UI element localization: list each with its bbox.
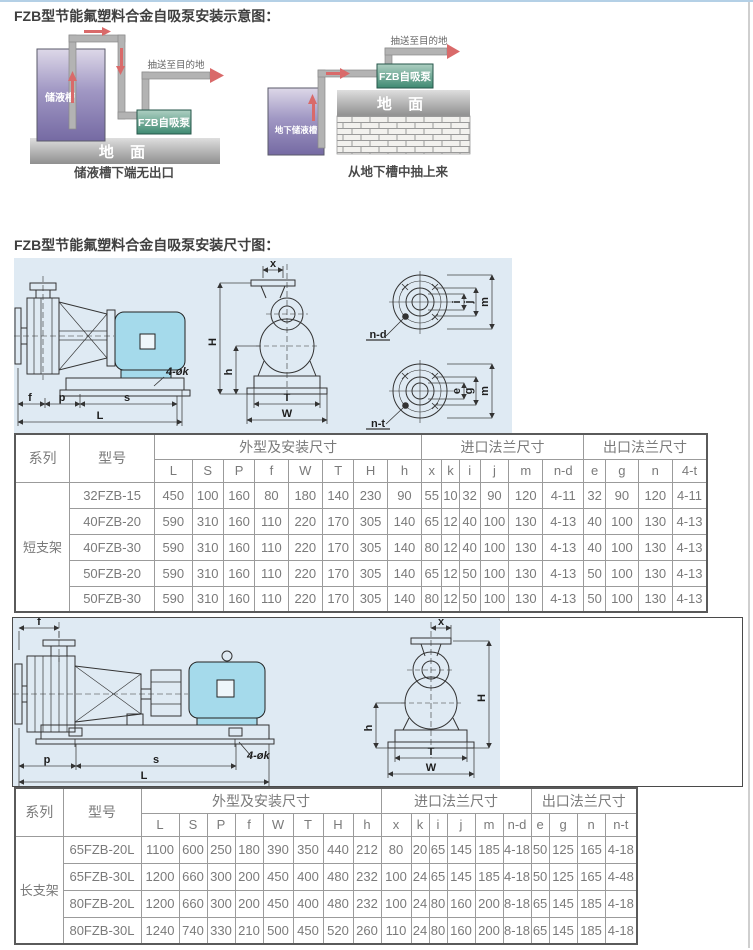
value-cell: 125 [549, 863, 577, 890]
dim-L: L [141, 770, 148, 782]
column-header-g: g [549, 813, 577, 836]
model-cell: 40FZB-20 [70, 508, 155, 534]
value-cell: 220 [288, 560, 322, 586]
col-group-outline: 外型及安装尺寸 [141, 788, 381, 813]
value-cell: 160 [223, 534, 254, 560]
value-cell: 24 [411, 917, 429, 944]
value-cell: 4-18 [503, 863, 531, 890]
dim-s: s [153, 754, 159, 766]
dim-nd: n-d [369, 329, 386, 341]
pump-front-view [247, 264, 327, 398]
installation-schematic: FZB自吸泵 储液槽 地 面 抽送至目的地 储液槽下端无出口 [14, 26, 474, 198]
model-cell: 50FZB-20 [70, 560, 155, 586]
column-header-i: i [459, 459, 480, 482]
dim-L: L [97, 410, 104, 422]
value-cell: 4-18 [503, 836, 531, 863]
col-group-outlet: 出口法兰尺寸 [583, 434, 707, 459]
value-cell: 140 [387, 560, 421, 586]
value-cell: 130 [509, 560, 543, 586]
column-header-P: P [207, 813, 235, 836]
spec-row-32FZB-15: 短支架32FZB-1545010016080180140230905510329… [15, 482, 707, 508]
pipe [69, 35, 125, 42]
drawing-long-svg: 4-øk f p s L [13, 618, 742, 786]
column-header-W: W [263, 813, 293, 836]
value-cell: 145 [549, 890, 577, 917]
value-cell: 100 [606, 560, 638, 586]
value-cell: 145 [447, 863, 475, 890]
value-cell: 200 [475, 917, 503, 944]
value-cell: 4-13 [672, 534, 707, 560]
destination-label: 抽送至目的地 [147, 59, 205, 71]
dim-m: m [479, 297, 491, 307]
pipe [142, 72, 210, 79]
series-cell: 短支架 [15, 482, 70, 612]
caption-left: 储液槽下端无出口 [73, 165, 174, 180]
value-cell: 170 [323, 560, 354, 586]
value-cell: 90 [387, 482, 421, 508]
long-bracket-spec-table: 系列 型号 外型及安装尺寸 进口法兰尺寸 出口法兰尺寸 LSPfWTHhxkij… [14, 787, 638, 945]
value-cell: 300 [207, 890, 235, 917]
dim-i: i [451, 300, 463, 303]
value-cell: 65 [422, 508, 442, 534]
value-cell: 110 [255, 586, 288, 612]
value-cell: 450 [155, 482, 192, 508]
value-cell: 170 [323, 508, 354, 534]
value-cell: 400 [293, 890, 323, 917]
column-header-x: x [422, 459, 442, 482]
value-cell: 145 [447, 836, 475, 863]
value-cell: 600 [179, 836, 207, 863]
bolt-hole-label: 4-øk [246, 750, 271, 762]
tank-label: 储液槽 [44, 91, 75, 104]
value-cell: 65 [429, 836, 447, 863]
value-cell: 170 [323, 534, 354, 560]
value-cell: 350 [293, 836, 323, 863]
value-cell: 24 [411, 890, 429, 917]
value-cell: 4-18 [605, 890, 637, 917]
value-cell: 50 [583, 560, 605, 586]
dim-H: H [476, 694, 488, 702]
dim-s: s [124, 392, 130, 404]
ground-label: 地 面 [99, 143, 151, 161]
value-cell: 80 [422, 586, 442, 612]
value-cell: 4-13 [672, 586, 707, 612]
value-cell: 305 [354, 508, 387, 534]
value-cell: 10 [442, 482, 459, 508]
column-header-H: H [323, 813, 353, 836]
column-header-k: k [411, 813, 429, 836]
col-group-model: 型号 [63, 788, 141, 836]
tank-right [268, 88, 324, 155]
value-cell: 12 [442, 508, 459, 534]
column-header-4-t: 4-t [672, 459, 707, 482]
value-cell: 65 [429, 863, 447, 890]
value-cell: 450 [263, 890, 293, 917]
value-cell: 200 [235, 863, 263, 890]
value-cell: 4-18 [605, 836, 637, 863]
value-cell: 1200 [141, 863, 179, 890]
value-cell: 450 [293, 917, 323, 944]
value-cell: 12 [442, 560, 459, 586]
value-cell: 4-13 [543, 586, 584, 612]
value-cell: 100 [480, 586, 508, 612]
col-group-model: 型号 [70, 434, 155, 482]
dim-W: W [282, 408, 293, 420]
column-header-n-d: n-d [543, 459, 584, 482]
short-bracket-table-section: 系列 型号 外型及安装尺寸 进口法兰尺寸 出口法兰尺寸 LSPfWTHhxkij… [14, 433, 708, 613]
value-cell: 232 [353, 863, 381, 890]
value-cell: 160 [223, 586, 254, 612]
value-cell: 4-11 [672, 482, 707, 508]
value-cell: 590 [155, 534, 192, 560]
value-cell: 4-13 [672, 560, 707, 586]
value-cell: 500 [263, 917, 293, 944]
spec-row-40FZB-20: 40FZB-2059031016011022017030514065124010… [15, 508, 707, 534]
value-cell: 300 [207, 863, 235, 890]
pipe [118, 35, 125, 119]
value-cell: 160 [223, 508, 254, 534]
value-cell: 130 [638, 534, 672, 560]
model-cell: 50FZB-30 [70, 586, 155, 612]
value-cell: 590 [155, 508, 192, 534]
pipe [318, 70, 325, 148]
column-header-f: f [255, 459, 288, 482]
value-cell: 100 [381, 863, 411, 890]
column-header-S: S [179, 813, 207, 836]
value-cell: 185 [475, 836, 503, 863]
value-cell: 210 [235, 917, 263, 944]
column-header-n-t: n-t [605, 813, 637, 836]
value-cell: 305 [354, 534, 387, 560]
value-cell: 110 [381, 917, 411, 944]
column-header-S: S [192, 459, 223, 482]
value-cell: 4-13 [543, 534, 584, 560]
value-cell: 180 [288, 482, 322, 508]
value-cell: 480 [323, 890, 353, 917]
value-cell: 165 [577, 863, 605, 890]
value-cell: 4-13 [543, 508, 584, 534]
column-header-k: k [442, 459, 459, 482]
value-cell: 65 [531, 890, 549, 917]
value-cell: 1200 [141, 890, 179, 917]
tank-label: 地下储液槽 [275, 125, 318, 135]
model-cell: 65FZB-20L [63, 836, 141, 863]
pump-label: FZB自吸泵 [138, 116, 190, 129]
value-cell: 50 [459, 560, 480, 586]
value-cell: 310 [192, 560, 223, 586]
value-cell: 90 [606, 482, 638, 508]
spec-row-65FZB-30L: 65FZB-30L1200660300200450400480232100246… [15, 863, 637, 890]
value-cell: 185 [577, 917, 605, 944]
value-cell: 8-18 [503, 917, 531, 944]
value-cell: 40 [459, 534, 480, 560]
value-cell: 4-18 [605, 917, 637, 944]
value-cell: 40 [459, 508, 480, 534]
value-cell: 110 [255, 534, 288, 560]
value-cell: 20 [411, 836, 429, 863]
page-top-border [0, 0, 753, 2]
value-cell: 130 [638, 560, 672, 586]
column-header-n: n [577, 813, 605, 836]
value-cell: 200 [475, 890, 503, 917]
value-cell: 590 [155, 586, 192, 612]
value-cell: 140 [387, 586, 421, 612]
dim-p: p [44, 754, 51, 766]
value-cell: 50 [531, 863, 549, 890]
value-cell: 185 [475, 863, 503, 890]
value-cell: 65 [531, 917, 549, 944]
value-cell: 100 [606, 534, 638, 560]
ground-label: 地 面 [377, 95, 429, 113]
dim-f: f [37, 618, 41, 628]
caption-right: 从地下槽中抽上来 [348, 164, 449, 179]
value-cell: 80 [429, 917, 447, 944]
value-cell: 140 [387, 508, 421, 534]
value-cell: 100 [480, 560, 508, 586]
dim-T: T [284, 392, 291, 404]
destination-label: 抽送至目的地 [390, 35, 448, 47]
spec-row-50FZB-20: 50FZB-2059031016011022017030514065125010… [15, 560, 707, 586]
value-cell: 125 [549, 836, 577, 863]
value-cell: 400 [293, 863, 323, 890]
column-header-j: j [480, 459, 508, 482]
column-header-T: T [323, 459, 354, 482]
spec-row-50FZB-30: 50FZB-3059031016011022017030514080125010… [15, 586, 707, 612]
value-cell: 50 [531, 836, 549, 863]
dim-f: f [28, 392, 32, 404]
column-header-T: T [293, 813, 323, 836]
value-cell: 220 [288, 534, 322, 560]
value-cell: 32 [459, 482, 480, 508]
value-cell: 100 [606, 508, 638, 534]
spec-row-80FZB-20L: 80FZB-20L1200660300200450400480232100248… [15, 890, 637, 917]
value-cell: 390 [263, 836, 293, 863]
model-cell: 32FZB-15 [70, 482, 155, 508]
value-cell: 250 [207, 836, 235, 863]
column-header-L: L [155, 459, 192, 482]
spec-row-40FZB-30: 40FZB-3059031016011022017030514080124010… [15, 534, 707, 560]
value-cell: 12 [442, 586, 459, 612]
value-cell: 180 [235, 836, 263, 863]
spec-row-65FZB-20L: 长支架65FZB-20L1100600250180390350440212802… [15, 836, 637, 863]
value-cell: 8-18 [503, 890, 531, 917]
dim-x: x [438, 618, 445, 628]
schematic-right: FZB自吸泵 地下储液槽 地 面 抽送至目的地 从地下槽中抽上来 [268, 35, 470, 179]
long-bracket-table-section: 系列 型号 外型及安装尺寸 进口法兰尺寸 出口法兰尺寸 LSPfWTHhxkij… [14, 787, 638, 945]
drawing-short-svg: 4-øk f p s L [14, 258, 512, 433]
col-group-outlet: 出口法兰尺寸 [531, 788, 637, 813]
col-group-series: 系列 [15, 788, 63, 836]
column-header-e: e [583, 459, 605, 482]
bolt-hole-label: 4-øk [165, 366, 190, 378]
value-cell: 740 [179, 917, 207, 944]
value-cell: 110 [255, 560, 288, 586]
value-cell: 24 [411, 863, 429, 890]
value-cell: 480 [323, 863, 353, 890]
value-cell: 4-13 [543, 560, 584, 586]
value-cell: 590 [155, 560, 192, 586]
dimensions-section-title: FZB型节能氟塑料合金自吸泵安装尺寸图： [14, 235, 279, 255]
page-right-border [748, 2, 750, 948]
value-cell: 232 [353, 890, 381, 917]
column-header-j: j [447, 813, 475, 836]
column-header-n: n [638, 459, 672, 482]
value-cell: 4-48 [605, 863, 637, 890]
value-cell: 40 [583, 534, 605, 560]
column-header-h: h [387, 459, 421, 482]
value-cell: 130 [509, 508, 543, 534]
front-dimensions [220, 266, 327, 424]
column-header-i: i [429, 813, 447, 836]
value-cell: 130 [638, 508, 672, 534]
value-cell: 305 [354, 560, 387, 586]
value-cell: 50 [459, 586, 480, 612]
value-cell: 1240 [141, 917, 179, 944]
schematic-left: FZB自吸泵 储液槽 地 面 抽送至目的地 储液槽下端无出口 [30, 27, 224, 180]
dimension-drawing-long: 4-øk f p s L [12, 617, 743, 787]
value-cell: 310 [192, 586, 223, 612]
value-cell: 185 [577, 890, 605, 917]
value-cell: 80 [422, 534, 442, 560]
value-cell: 55 [422, 482, 442, 508]
value-cell: 40 [583, 508, 605, 534]
column-header-e: e [531, 813, 549, 836]
model-cell: 40FZB-30 [70, 534, 155, 560]
value-cell: 220 [288, 586, 322, 612]
dim-p: p [59, 392, 66, 404]
column-header-L: L [141, 813, 179, 836]
value-cell: 440 [323, 836, 353, 863]
spec-row-80FZB-30L: 80FZB-30L1240740330210500450520260110248… [15, 917, 637, 944]
value-cell: 80 [429, 890, 447, 917]
value-cell: 100 [381, 890, 411, 917]
dim-h: h [363, 724, 375, 731]
series-cell: 长支架 [15, 836, 63, 944]
value-cell: 130 [509, 534, 543, 560]
schematic-svg: FZB自吸泵 储液槽 地 面 抽送至目的地 储液槽下端无出口 [14, 26, 474, 198]
col-group-outline: 外型及安装尺寸 [155, 434, 422, 459]
value-cell: 305 [354, 586, 387, 612]
value-cell: 660 [179, 863, 207, 890]
value-cell: 110 [255, 508, 288, 534]
schematic-section-title: FZB型节能氟塑料合金自吸泵安装示意图： [14, 6, 279, 26]
col-group-inlet: 进口法兰尺寸 [422, 434, 584, 459]
dimension-drawing-short: 4-øk f p s L [14, 258, 512, 433]
dim-H: H [207, 338, 219, 346]
dim-nt: n-t [371, 418, 385, 430]
value-cell: 160 [447, 917, 475, 944]
col-group-series: 系列 [15, 434, 70, 482]
model-cell: 65FZB-30L [63, 863, 141, 890]
value-cell: 100 [480, 508, 508, 534]
column-header-H: H [354, 459, 387, 482]
value-cell: 170 [323, 586, 354, 612]
value-cell: 310 [192, 534, 223, 560]
value-cell: 4-13 [672, 508, 707, 534]
column-header-x: x [381, 813, 411, 836]
value-cell: 1100 [141, 836, 179, 863]
short-bracket-spec-table: 系列 型号 外型及安装尺寸 进口法兰尺寸 出口法兰尺寸 LSPfWTHhxkij… [14, 433, 708, 613]
group-header-row: 系列 型号 外型及安装尺寸 进口法兰尺寸 出口法兰尺寸 [15, 434, 707, 459]
dim-h: h [223, 368, 235, 375]
value-cell: 120 [638, 482, 672, 508]
value-cell: 520 [323, 917, 353, 944]
model-cell: 80FZB-20L [63, 890, 141, 917]
col-group-inlet: 进口法兰尺寸 [381, 788, 531, 813]
value-cell: 12 [442, 534, 459, 560]
dim-m2: m [479, 386, 491, 396]
value-cell: 130 [638, 586, 672, 612]
dim-g: g [463, 388, 475, 395]
value-cell: 165 [577, 836, 605, 863]
value-cell: 80 [381, 836, 411, 863]
column-header-W: W [288, 459, 322, 482]
dim-e: e [451, 388, 463, 394]
column-header-g: g [606, 459, 638, 482]
value-cell: 120 [509, 482, 543, 508]
value-cell: 80 [255, 482, 288, 508]
dim-T: T [428, 746, 435, 758]
dim-j: j [463, 300, 475, 304]
value-cell: 260 [353, 917, 381, 944]
value-cell: 100 [606, 586, 638, 612]
page: FZB型节能氟塑料合金自吸泵安装示意图： [0, 0, 753, 950]
value-cell: 32 [583, 482, 605, 508]
column-header-h: h [353, 813, 381, 836]
pump-side-view-long [13, 622, 274, 756]
value-cell: 100 [480, 534, 508, 560]
pipe [385, 48, 447, 55]
value-cell: 660 [179, 890, 207, 917]
value-cell: 90 [480, 482, 508, 508]
value-cell: 140 [387, 534, 421, 560]
value-cell: 65 [422, 560, 442, 586]
value-cell: 160 [447, 890, 475, 917]
value-cell: 330 [207, 917, 235, 944]
value-cell: 220 [288, 508, 322, 534]
value-cell: 310 [192, 508, 223, 534]
value-cell: 160 [223, 560, 254, 586]
model-cell: 80FZB-30L [63, 917, 141, 944]
group-header-row: 系列 型号 外型及安装尺寸 进口法兰尺寸 出口法兰尺寸 [15, 788, 637, 813]
column-header-m: m [509, 459, 543, 482]
value-cell: 100 [192, 482, 223, 508]
pump-front-view-long [388, 622, 474, 758]
dim-W: W [426, 762, 437, 774]
value-cell: 212 [353, 836, 381, 863]
value-cell: 4-11 [543, 482, 584, 508]
value-cell: 130 [509, 586, 543, 612]
value-cell: 230 [354, 482, 387, 508]
dim-x: x [270, 258, 277, 270]
value-cell: 50 [583, 586, 605, 612]
column-header-f: f [235, 813, 263, 836]
value-cell: 160 [223, 482, 254, 508]
value-cell: 450 [263, 863, 293, 890]
pump-label: FZB自吸泵 [379, 70, 431, 83]
column-header-m: m [475, 813, 503, 836]
column-header-P: P [223, 459, 254, 482]
brick-wall [337, 116, 470, 154]
column-header-n-d: n-d [503, 813, 531, 836]
value-cell: 145 [549, 917, 577, 944]
pump-side-view [14, 276, 190, 396]
value-cell: 140 [323, 482, 354, 508]
value-cell: 200 [235, 890, 263, 917]
